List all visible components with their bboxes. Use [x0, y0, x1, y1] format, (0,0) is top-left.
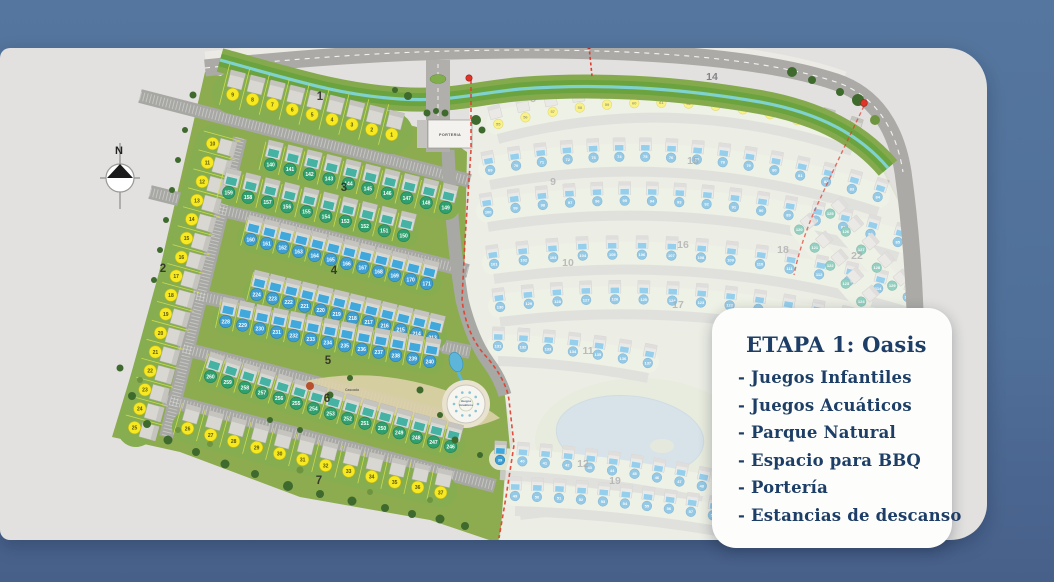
lot-number: 237 — [375, 350, 384, 356]
lot-number: 153 — [341, 219, 350, 225]
lot-number: 246 — [446, 444, 455, 450]
amenity-item: - Estancias de descanso — [738, 506, 940, 525]
tree — [477, 452, 483, 458]
lot-number: 33 — [346, 469, 352, 475]
tree — [836, 88, 844, 96]
tree — [267, 417, 273, 423]
plaza-label: Acuáticos — [459, 403, 474, 407]
lot-number: 171 — [422, 281, 431, 287]
tree — [787, 67, 797, 77]
lot-number: 157 — [263, 200, 272, 206]
lot-number: 160 — [246, 237, 255, 243]
tree — [163, 217, 169, 223]
lot-number: 2 — [370, 127, 373, 133]
info-card-title: ETAPA 1: Oasis — [746, 332, 940, 357]
tree — [433, 108, 439, 114]
lot-number: 17 — [173, 274, 179, 280]
lot-number: 220 — [316, 308, 325, 314]
lot-number: 259 — [223, 380, 232, 386]
lot-number: 217 — [364, 320, 373, 326]
lot-number: 156 — [283, 205, 292, 211]
tree — [471, 115, 481, 125]
tree — [182, 127, 188, 133]
lot-number: 23 — [142, 388, 148, 394]
lot-number: 9 — [231, 92, 234, 98]
lot-number: 141 — [286, 167, 295, 173]
lot-number: 257 — [258, 391, 267, 397]
lot-number: 27 — [208, 433, 214, 439]
tree — [157, 247, 163, 253]
lot-number: 146 — [383, 191, 392, 197]
tree — [479, 127, 486, 134]
masterplan-slide: { "info_card": { "title": "ETAPA 1: Oasi… — [0, 0, 1054, 582]
phase1-block-label: 1 — [317, 91, 324, 103]
lot-number: 145 — [364, 186, 373, 192]
phase1-block-label: 3 — [341, 182, 347, 194]
lot-number: 168 — [374, 269, 383, 275]
lot-number: 256 — [275, 396, 284, 402]
gate-marker — [861, 100, 868, 107]
lot-number: 15 — [184, 236, 190, 242]
tree — [404, 92, 412, 100]
lot-number: 165 — [326, 257, 335, 263]
tree — [452, 437, 459, 444]
tree — [251, 470, 259, 478]
tree — [408, 510, 416, 518]
lot-number: 14 — [189, 217, 195, 223]
lot-number: 154 — [322, 214, 331, 220]
lot-number: 28 — [231, 439, 237, 445]
tree — [190, 92, 197, 99]
lot-number: 162 — [278, 245, 287, 251]
lot-number: 167 — [358, 265, 367, 271]
tree — [348, 497, 357, 506]
lot-number: 223 — [268, 296, 277, 302]
lot-number: 238 — [392, 353, 401, 359]
tree — [436, 515, 445, 524]
lot-number: 258 — [241, 385, 250, 391]
tree — [392, 87, 398, 93]
phase1-block-label: 2 — [160, 263, 166, 275]
lot-number: 150 — [399, 233, 408, 239]
park-label: Cascada — [345, 388, 359, 392]
info-card: ETAPA 1: Oasis - Juegos Infantiles- Jueg… — [712, 308, 952, 548]
compass-rose: N — [100, 143, 140, 209]
porteria-label: PORTERIA — [439, 133, 461, 137]
lot-number: 166 — [342, 261, 351, 267]
lot-number: 148 — [422, 201, 431, 207]
pool — [358, 333, 370, 343]
lot-number: 3 — [351, 122, 354, 128]
tree — [417, 387, 424, 394]
lot-number: 161 — [262, 241, 271, 247]
lot-number: 31 — [300, 457, 306, 463]
pool — [341, 330, 353, 340]
lot-number: 260 — [206, 374, 215, 380]
lot-number: 152 — [361, 224, 370, 230]
lot-number: 13 — [194, 198, 200, 204]
phase1-block-label: 6 — [324, 393, 330, 405]
tree — [175, 157, 181, 163]
lot-number: 25 — [132, 426, 138, 432]
amenity-item: - Portería — [738, 478, 940, 497]
lot-number: 169 — [390, 273, 399, 279]
tree — [117, 365, 124, 372]
lot-number: 163 — [294, 249, 303, 255]
pool — [392, 339, 404, 349]
red-tree — [306, 382, 314, 390]
lot-number: 147 — [403, 196, 412, 202]
tree — [128, 392, 136, 400]
lot-number: 32 — [323, 463, 329, 469]
amenity-item: - Juegos Acuáticos — [738, 396, 940, 415]
lot-number: 164 — [310, 253, 319, 259]
lot-number: 4 — [331, 117, 334, 123]
lot-number: 253 — [326, 411, 335, 417]
tree — [381, 504, 389, 512]
pool — [496, 448, 505, 454]
lot-number: 30 — [277, 451, 283, 457]
lot-number: 224 — [252, 292, 261, 298]
amenity-item: - Parque Natural — [738, 423, 940, 442]
lot-number: 250 — [378, 426, 387, 432]
lot-number: 149 — [441, 205, 450, 211]
lot-number: 22 — [147, 369, 153, 375]
lot-number: 239 — [409, 356, 418, 362]
tree — [192, 448, 200, 456]
lot-number: 37 — [438, 490, 444, 496]
lot-number: 21 — [153, 350, 159, 356]
lot-number: 222 — [284, 300, 293, 306]
lot-number: 158 — [244, 195, 253, 201]
lot-number: 10 — [210, 142, 216, 148]
lot-number: 240 — [426, 359, 435, 365]
pool — [375, 336, 387, 346]
lot-number: 140 — [266, 162, 275, 168]
lot-number: 7 — [271, 102, 274, 108]
lot-number: 254 — [309, 406, 318, 412]
lot-number: 19 — [163, 312, 169, 318]
lot-number: 252 — [344, 416, 353, 422]
lot-number: 34 — [369, 474, 375, 480]
pool — [426, 345, 438, 355]
lot-number: 251 — [361, 421, 370, 427]
lot-number: 29 — [254, 445, 260, 451]
lot-number: 36 — [415, 485, 421, 491]
gate-marker — [586, 43, 591, 48]
tree — [347, 375, 353, 381]
lot-number: 249 — [395, 431, 404, 437]
lot-number: 247 — [429, 440, 438, 446]
lot-number: 229 — [239, 323, 248, 329]
lot-number: 248 — [412, 435, 421, 441]
lot-number: 12 — [199, 179, 205, 185]
lot-number: 235 — [341, 344, 350, 350]
lot-number: 219 — [332, 312, 341, 318]
lot-number: 6 — [291, 107, 294, 113]
tree — [297, 427, 303, 433]
amenities-list: - Juegos Infantiles- Juegos Acuáticos- P… — [738, 368, 940, 525]
tree — [437, 412, 443, 418]
tree — [808, 76, 816, 84]
lot-number: 170 — [406, 277, 415, 283]
tree — [143, 420, 151, 428]
phase1-block-label: 7 — [316, 475, 322, 487]
lot-number: 159 — [224, 190, 233, 196]
lot-number: 11 — [205, 160, 211, 166]
lot-number: 1 — [390, 132, 393, 138]
amenity-item: - Espacio para BBQ — [738, 451, 940, 470]
lot-number: 18 — [168, 293, 174, 299]
lot-number: 24 — [137, 407, 143, 413]
phase1-block-label: 4 — [331, 265, 338, 277]
gate-marker — [466, 75, 472, 81]
lot-number: 230 — [256, 327, 265, 333]
lot-number: 20 — [158, 331, 164, 337]
lot-number: 236 — [358, 347, 367, 353]
lot-number: 142 — [305, 172, 314, 178]
tree — [151, 277, 157, 283]
lot-number: 255 — [292, 401, 301, 407]
lot-number: 35 — [392, 480, 398, 486]
lot-number: 39 — [498, 457, 503, 462]
lot-number: 8 — [251, 97, 254, 103]
tree — [442, 110, 449, 117]
lot-number: 151 — [380, 229, 389, 235]
lot-number: 231 — [273, 330, 282, 336]
phase2-block-label: 14 — [706, 71, 718, 83]
pool — [409, 342, 421, 352]
lot-number: 234 — [324, 340, 333, 346]
amenity-item: - Juegos Infantiles — [738, 368, 940, 387]
tree — [424, 110, 431, 117]
lot-number: 233 — [307, 337, 316, 343]
lot-number: 155 — [302, 209, 311, 215]
phase1-block-label: 5 — [325, 355, 332, 367]
lot-number: 218 — [348, 316, 357, 322]
lot-number: 16 — [179, 255, 185, 261]
lot-number: 228 — [222, 319, 231, 325]
lot-number: 232 — [290, 334, 299, 340]
tree — [461, 522, 469, 530]
tree — [164, 436, 173, 445]
tree — [221, 460, 230, 469]
lot-number: 5 — [311, 112, 314, 118]
tree — [283, 481, 293, 491]
tree — [169, 187, 175, 193]
tree — [316, 490, 324, 498]
lot-number: 143 — [325, 177, 334, 183]
compass-n-label: N — [115, 145, 123, 157]
lot-number: 26 — [185, 426, 191, 432]
lot-number: 221 — [300, 304, 309, 310]
